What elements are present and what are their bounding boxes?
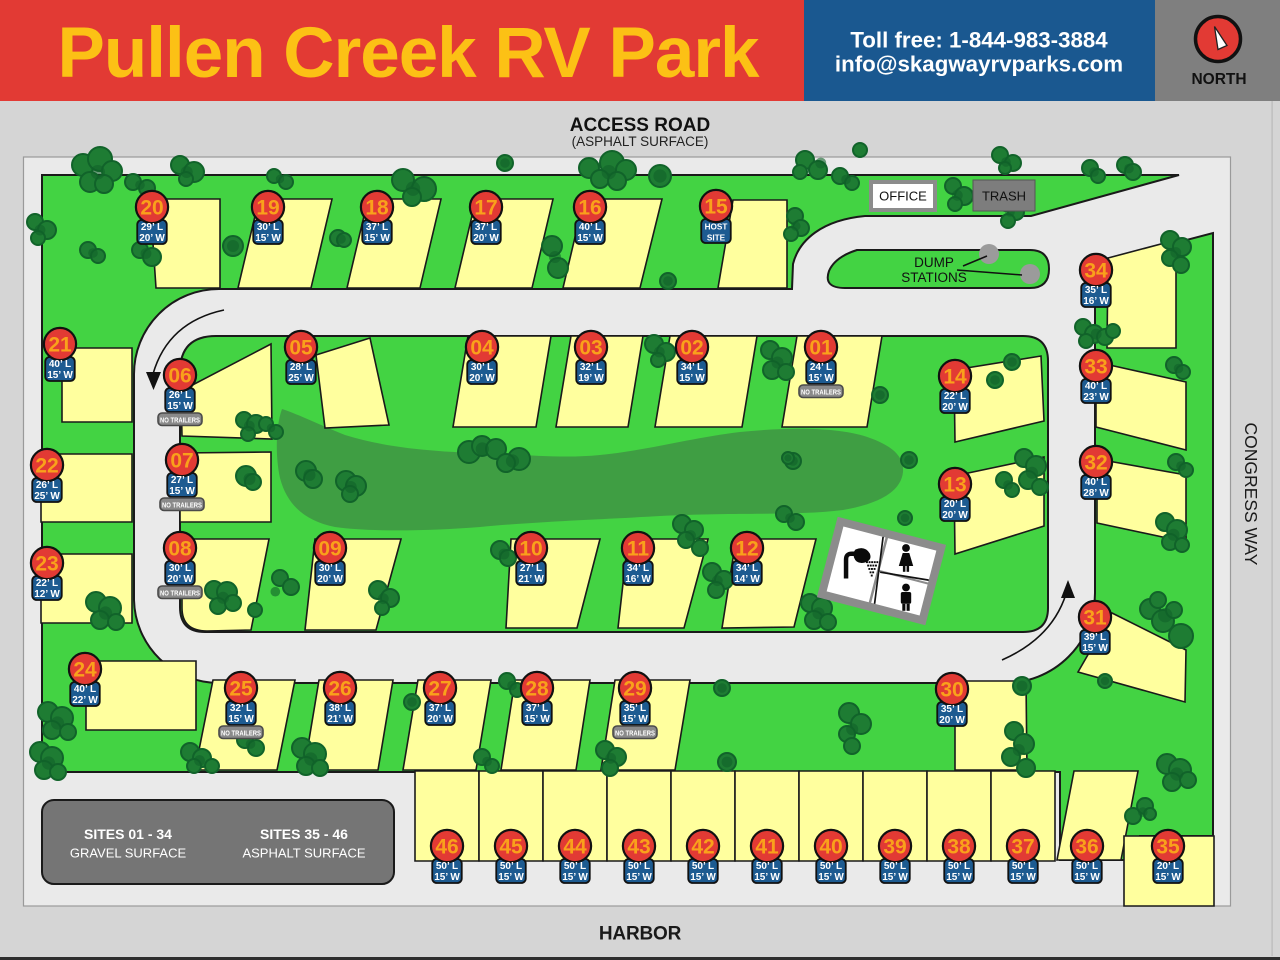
svg-text:31: 31 [1083,606,1107,629]
svg-text:14: 14 [943,365,967,388]
svg-text:50’ L: 50’ L [500,861,522,872]
svg-text:06: 06 [168,364,191,387]
svg-text:NO TRAILERS: NO TRAILERS [801,387,841,396]
svg-text:09: 09 [318,537,341,560]
svg-text:40’ L: 40’ L [579,222,601,233]
svg-text:15: 15 [704,195,728,218]
svg-text:15’ W: 15’ W [946,872,972,883]
svg-text:20’ L: 20’ L [1157,861,1179,872]
svg-text:GRAVEL SURFACE: GRAVEL SURFACE [70,846,187,861]
svg-text:15’ W: 15’ W [577,233,603,244]
svg-text:STATIONS: STATIONS [901,270,967,285]
svg-text:15’ W: 15’ W [228,714,254,725]
svg-text:30: 30 [940,678,963,701]
svg-text:37’ L: 37’ L [429,703,451,714]
svg-text:44: 44 [563,835,587,858]
svg-text:33: 33 [1084,355,1107,378]
svg-text:19: 19 [256,196,279,219]
svg-text:16’ W: 16’ W [1083,296,1109,307]
svg-text:14’ W: 14’ W [734,574,760,585]
svg-text:35: 35 [1156,835,1180,858]
svg-text:16’ W: 16’ W [625,574,651,585]
svg-text:(ASPHALT SURFACE): (ASPHALT SURFACE) [572,134,709,149]
svg-text:24: 24 [73,658,97,681]
svg-text:Pullen Creek RV Park: Pullen Creek RV Park [58,14,760,93]
svg-text:50’ L: 50’ L [1012,861,1034,872]
svg-text:NO TRAILERS: NO TRAILERS [221,728,261,737]
svg-text:23’ W: 23’ W [1083,392,1109,403]
svg-text:37’ L: 37’ L [526,703,548,714]
svg-text:28’ L: 28’ L [290,362,312,373]
svg-text:15’ W: 15’ W [1010,872,1036,883]
svg-text:15’ W: 15’ W [167,401,193,412]
svg-text:15’ W: 15’ W [818,872,844,883]
svg-text:12’ W: 12’ W [34,589,60,600]
svg-text:15’ W: 15’ W [882,872,908,883]
svg-text:29’ L: 29’ L [141,222,163,233]
svg-text:NO TRAILERS: NO TRAILERS [160,588,200,597]
svg-text:42: 42 [691,835,714,858]
svg-text:15’ W: 15’ W [808,373,834,384]
svg-text:15’ W: 15’ W [1155,872,1181,883]
svg-text:50’ L: 50’ L [1076,861,1098,872]
svg-text:39: 39 [883,835,906,858]
svg-text:NO TRAILERS: NO TRAILERS [615,728,655,737]
svg-text:15’ W: 15’ W [626,872,652,883]
svg-text:20’ W: 20’ W [317,574,343,585]
svg-text:16: 16 [578,196,601,219]
svg-text:25: 25 [229,677,253,700]
svg-text:21’ W: 21’ W [327,714,353,725]
svg-text:15’ W: 15’ W [169,486,195,497]
svg-text:ASPHALT SURFACE: ASPHALT SURFACE [242,846,365,861]
svg-text:22’ L: 22’ L [36,578,58,589]
svg-text:08: 08 [168,537,192,560]
svg-text:NO TRAILERS: NO TRAILERS [160,415,200,424]
svg-text:30’ L: 30’ L [169,563,191,574]
svg-text:50’ L: 50’ L [756,861,778,872]
svg-text:39’ L: 39’ L [1084,632,1106,643]
svg-text:OFFICE: OFFICE [879,189,927,204]
svg-text:26: 26 [328,677,351,700]
svg-text:20’ W: 20’ W [139,233,165,244]
svg-text:17: 17 [474,196,497,219]
svg-text:12: 12 [735,537,758,560]
svg-text:34: 34 [1084,259,1108,282]
svg-text:22: 22 [35,454,58,477]
svg-text:36: 36 [1075,835,1098,858]
svg-text:15’ W: 15’ W [47,370,73,381]
svg-text:50’ L: 50’ L [628,861,650,872]
svg-text:37’ L: 37’ L [475,222,497,233]
svg-text:15’ W: 15’ W [754,872,780,883]
svg-text:50’ L: 50’ L [436,861,458,872]
svg-text:15’ W: 15’ W [679,373,705,384]
svg-text:20: 20 [140,196,163,219]
svg-text:15’ W: 15’ W [255,233,281,244]
svg-text:20’ W: 20’ W [942,402,968,413]
svg-text:SITE: SITE [707,234,726,243]
svg-text:46: 46 [435,835,458,858]
svg-text:19’ W: 19’ W [578,373,604,384]
svg-text:38: 38 [947,835,971,858]
svg-text:50’ L: 50’ L [564,861,586,872]
svg-text:NORTH: NORTH [1191,71,1246,88]
svg-text:21: 21 [48,333,72,356]
svg-text:01: 01 [809,336,833,359]
svg-text:20’ W: 20’ W [942,510,968,521]
svg-text:40’ L: 40’ L [1085,381,1107,392]
svg-text:03: 03 [579,336,602,359]
svg-text:40’ L: 40’ L [1085,477,1107,488]
svg-text:28: 28 [525,677,549,700]
svg-text:20’ W: 20’ W [473,233,499,244]
svg-text:32’ L: 32’ L [230,703,252,714]
svg-text:HOST: HOST [705,223,728,232]
svg-text:37: 37 [1011,835,1034,858]
svg-text:41: 41 [755,835,779,858]
svg-text:25’ W: 25’ W [34,491,60,502]
svg-text:15’ W: 15’ W [364,233,390,244]
svg-text:info@skagwayrvparks.com: info@skagwayrvparks.com [835,52,1123,77]
svg-text:29: 29 [623,677,646,700]
svg-text:26’ L: 26’ L [36,480,58,491]
svg-text:32’ L: 32’ L [580,362,602,373]
svg-text:20’ W: 20’ W [167,574,193,585]
svg-text:37’ L: 37’ L [366,222,388,233]
svg-text:02: 02 [680,336,703,359]
svg-text:20’ W: 20’ W [939,715,965,726]
svg-text:34’ L: 34’ L [736,563,758,574]
svg-text:34’ L: 34’ L [627,563,649,574]
svg-text:20’ W: 20’ W [469,373,495,384]
svg-text:15’ W: 15’ W [690,872,716,883]
svg-text:43: 43 [627,835,650,858]
svg-text:ACCESS ROAD: ACCESS ROAD [570,115,710,136]
svg-text:40: 40 [819,835,842,858]
svg-text:11: 11 [627,537,650,560]
svg-text:SITES 35 - 46: SITES 35 - 46 [260,826,348,842]
svg-text:Toll free: 1-844-983-3884: Toll free: 1-844-983-3884 [850,28,1108,53]
svg-text:18: 18 [365,196,389,219]
svg-text:22’ L: 22’ L [944,391,966,402]
svg-text:27’ L: 27’ L [171,475,193,486]
svg-text:32: 32 [1084,451,1107,474]
svg-text:38’ L: 38’ L [329,703,351,714]
svg-text:21’ W: 21’ W [518,574,544,585]
svg-text:15’ W: 15’ W [562,872,588,883]
svg-text:35’ L: 35’ L [1085,285,1107,296]
svg-text:15’ W: 15’ W [524,714,550,725]
svg-text:22’ W: 22’ W [72,695,98,706]
svg-text:26’ L: 26’ L [169,390,191,401]
svg-text:50’ L: 50’ L [692,861,714,872]
svg-text:20’ L: 20’ L [944,499,966,510]
svg-text:28’ W: 28’ W [1083,488,1109,499]
svg-text:35’ L: 35’ L [624,703,646,714]
svg-text:34’ L: 34’ L [681,362,703,373]
svg-text:23: 23 [35,552,58,575]
svg-text:NO TRAILERS: NO TRAILERS [162,500,202,509]
svg-text:15’ W: 15’ W [1082,643,1108,654]
svg-text:DUMP: DUMP [914,255,954,270]
svg-text:20’ W: 20’ W [427,714,453,725]
svg-text:10: 10 [519,537,542,560]
svg-text:05: 05 [289,336,313,359]
svg-text:50’ L: 50’ L [820,861,842,872]
svg-text:13: 13 [943,473,966,496]
svg-text:45: 45 [499,835,523,858]
svg-text:27’ L: 27’ L [520,563,542,574]
svg-text:15’ W: 15’ W [622,714,648,725]
svg-text:35’ L: 35’ L [941,704,963,715]
svg-text:TRASH: TRASH [982,189,1026,204]
svg-text:40’ L: 40’ L [74,684,96,695]
svg-text:15’ W: 15’ W [498,872,524,883]
svg-text:25’ W: 25’ W [288,373,314,384]
svg-text:40’ L: 40’ L [49,359,71,370]
svg-text:30’ L: 30’ L [257,222,279,233]
svg-text:30’ L: 30’ L [471,362,493,373]
svg-text:50’ L: 50’ L [884,861,906,872]
svg-text:HARBOR: HARBOR [599,924,682,945]
svg-text:SITES 01 - 34: SITES 01 - 34 [84,826,172,842]
svg-text:15’ W: 15’ W [434,872,460,883]
svg-text:24’ L: 24’ L [810,362,832,373]
svg-text:50’ L: 50’ L [948,861,970,872]
svg-text:27: 27 [428,677,451,700]
svg-text:15’ W: 15’ W [1074,872,1100,883]
svg-text:04: 04 [470,336,494,359]
svg-text:CONGRESS WAY: CONGRESS WAY [1241,423,1261,566]
svg-text:07: 07 [170,449,193,472]
svg-text:30’ L: 30’ L [319,563,341,574]
